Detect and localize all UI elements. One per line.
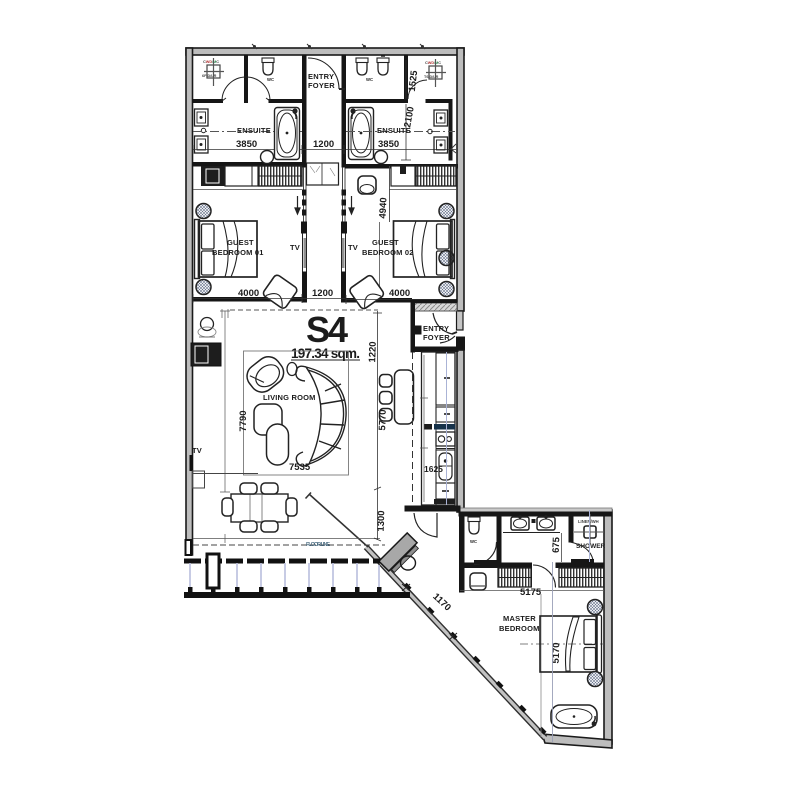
svg-text:GUEST: GUEST <box>372 238 399 247</box>
svg-text:3850: 3850 <box>236 139 257 150</box>
svg-text:4000: 4000 <box>238 288 259 299</box>
svg-text:BEDROOM: BEDROOM <box>499 624 540 633</box>
svg-text:LINEN/WH: LINEN/WH <box>578 519 599 524</box>
svg-text:CWD/MC: CWD/MC <box>203 60 219 64</box>
svg-text:4940: 4940 <box>377 197 389 219</box>
svg-text:1200: 1200 <box>313 139 334 150</box>
svg-text:FLOOR LINE: FLOOR LINE <box>306 542 330 548</box>
svg-text:WC: WC <box>267 77 274 82</box>
svg-text:ENSUITE: ENSUITE <box>377 126 411 135</box>
svg-text:TV: TV <box>290 243 300 252</box>
svg-text:BEDROOM 02: BEDROOM 02 <box>362 248 414 257</box>
svg-text:BEDROOM 01: BEDROOM 01 <box>212 248 264 257</box>
svg-text:CWD/MC: CWD/MC <box>425 61 441 65</box>
svg-text:6F/D/LR: 6F/D/LR <box>202 74 217 78</box>
svg-text:7790: 7790 <box>238 410 249 431</box>
svg-text:1625: 1625 <box>424 464 443 474</box>
svg-text:197.34 sqm.: 197.34 sqm. <box>291 346 360 361</box>
svg-text:LIVING ROOM: LIVING ROOM <box>263 393 316 402</box>
svg-text:7535: 7535 <box>289 462 311 473</box>
svg-text:4000: 4000 <box>389 288 410 299</box>
svg-text:GUEST: GUEST <box>227 238 254 247</box>
svg-text:WC: WC <box>366 77 373 82</box>
svg-text:1200: 1200 <box>312 288 333 299</box>
svg-text:TV: TV <box>348 243 358 252</box>
svg-text:3850: 3850 <box>378 139 399 150</box>
svg-text:5770: 5770 <box>377 409 389 431</box>
svg-text:TV: TV <box>192 446 202 455</box>
svg-text:T6/D/LR: T6/D/LR <box>424 75 439 79</box>
svg-text:675: 675 <box>551 536 563 553</box>
svg-text:FOYER: FOYER <box>308 81 335 90</box>
svg-text:MASTER: MASTER <box>503 614 536 623</box>
svg-text:ENTRY: ENTRY <box>308 72 334 81</box>
svg-text:5175: 5175 <box>520 587 542 598</box>
svg-text:ENSUITE: ENSUITE <box>237 126 271 135</box>
svg-text:WC: WC <box>470 539 477 544</box>
svg-text:FOYER: FOYER <box>423 333 450 342</box>
svg-text:S4: S4 <box>306 309 348 350</box>
svg-text:SHOWER: SHOWER <box>576 543 606 550</box>
